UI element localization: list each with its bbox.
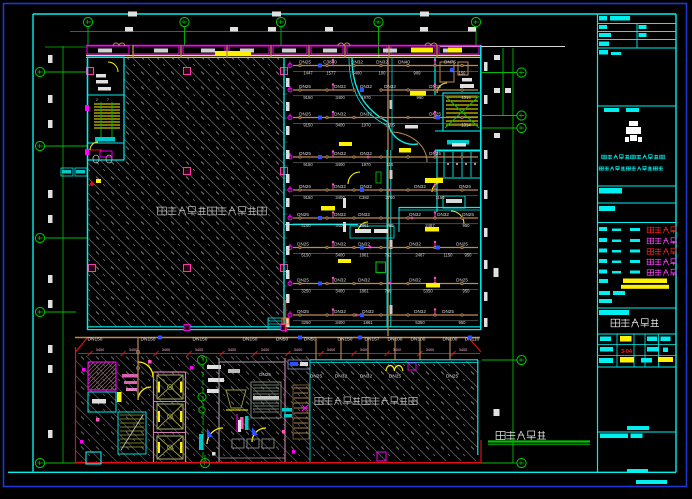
svg-text:780: 780 <box>385 288 393 293</box>
svg-text:5350: 5350 <box>423 288 433 293</box>
svg-text:1150: 1150 <box>443 252 453 257</box>
svg-text:DN25: DN25 <box>299 84 311 89</box>
svg-text:DN32: DN32 <box>414 184 426 189</box>
svg-text:DN50: DN50 <box>304 337 317 343</box>
svg-text:DN150: DN150 <box>193 337 208 343</box>
svg-text:2487: 2487 <box>415 252 425 257</box>
svg-text:960: 960 <box>417 95 425 100</box>
svg-text:DN25: DN25 <box>299 184 311 189</box>
svg-text:950: 950 <box>463 288 471 293</box>
svg-text:DN157: DN157 <box>365 337 380 343</box>
svg-text:DN32: DN32 <box>360 374 373 380</box>
svg-text:DN15: DN15 <box>429 84 441 89</box>
svg-text:DN32: DN32 <box>358 241 370 246</box>
svg-text:DN50: DN50 <box>276 337 289 343</box>
svg-text:3400: 3400 <box>261 348 269 352</box>
svg-text:DN32: DN32 <box>437 212 449 217</box>
svg-text:DN32: DN32 <box>358 212 370 217</box>
svg-text:9150: 9150 <box>303 95 313 100</box>
svg-text:3250: 3250 <box>301 288 311 293</box>
svg-text:3400: 3400 <box>335 252 345 257</box>
svg-text:3400: 3400 <box>459 348 467 352</box>
svg-text:DN32: DN32 <box>376 59 388 64</box>
svg-text:1861: 1861 <box>359 223 369 228</box>
svg-text:DN32: DN32 <box>334 184 346 189</box>
svg-text:DN100: DN100 <box>411 337 426 343</box>
svg-text:DN40: DN40 <box>398 59 410 64</box>
svg-text:DN32: DN32 <box>414 309 426 314</box>
svg-text:1970: 1970 <box>361 122 371 127</box>
svg-text:DN32: DN32 <box>409 241 421 246</box>
svg-text:1314: 1314 <box>461 122 471 127</box>
svg-text:DN32: DN32 <box>351 59 363 64</box>
svg-text:DN32: DN32 <box>409 212 421 217</box>
svg-text:DN32: DN32 <box>334 277 346 282</box>
svg-text:DN25: DN25 <box>462 212 474 217</box>
svg-text:3400: 3400 <box>96 348 104 352</box>
svg-text:DN25: DN25 <box>456 241 468 246</box>
svg-text:100: 100 <box>379 70 387 75</box>
svg-text:DN25: DN25 <box>389 374 402 380</box>
svg-text:DN150: DN150 <box>338 337 353 343</box>
svg-text:9150: 9150 <box>303 122 313 127</box>
svg-text:DN32: DN32 <box>334 309 346 314</box>
svg-text:DN25: DN25 <box>297 277 309 282</box>
svg-text:1861: 1861 <box>359 252 369 257</box>
svg-text:1577: 1577 <box>326 70 336 75</box>
svg-text:5150: 5150 <box>301 252 311 257</box>
svg-text:DN25: DN25 <box>259 372 271 377</box>
svg-text:950: 950 <box>465 252 473 257</box>
svg-text:3400: 3400 <box>195 348 203 352</box>
svg-text:C3840: C3840 <box>323 59 337 64</box>
svg-text:DN25: DN25 <box>459 184 471 189</box>
svg-text:C382: C382 <box>359 195 370 200</box>
svg-text:3250: 3250 <box>301 320 311 325</box>
svg-text:115: 115 <box>387 162 394 167</box>
svg-text:1861: 1861 <box>363 320 373 325</box>
svg-text:3400: 3400 <box>360 348 368 352</box>
svg-text:3400: 3400 <box>129 348 137 352</box>
svg-text:1150: 1150 <box>435 195 445 200</box>
svg-text:DN25: DN25 <box>429 151 441 156</box>
svg-text:3400: 3400 <box>327 348 335 352</box>
svg-text:1314: 1314 <box>461 95 471 100</box>
svg-text:3-04: 3-04 <box>621 349 633 355</box>
svg-text:950: 950 <box>459 320 467 325</box>
svg-text:3400: 3400 <box>335 223 345 228</box>
svg-text:DN25: DN25 <box>310 374 323 380</box>
svg-text:DN32: DN32 <box>334 151 346 156</box>
svg-text:DN25: DN25 <box>442 309 454 314</box>
svg-text:5150: 5150 <box>301 223 311 228</box>
svg-text:DN25: DN25 <box>456 277 468 282</box>
svg-text:1861: 1861 <box>359 288 369 293</box>
svg-text:5400: 5400 <box>352 70 362 75</box>
svg-text:DN110: DN110 <box>465 337 480 343</box>
svg-text:3400: 3400 <box>335 195 345 200</box>
svg-text:DN75: DN75 <box>444 59 456 64</box>
svg-text:7: 7 <box>107 98 109 102</box>
svg-text:3400: 3400 <box>335 320 345 325</box>
svg-text:DN25: DN25 <box>299 59 311 64</box>
svg-text:5350: 5350 <box>415 320 425 325</box>
svg-text:1970: 1970 <box>361 95 371 100</box>
svg-text:950: 950 <box>463 223 471 228</box>
svg-text:DN150: DN150 <box>141 337 156 343</box>
svg-text:DN25: DN25 <box>299 151 311 156</box>
svg-text:780: 780 <box>387 223 395 228</box>
svg-text:DN32: DN32 <box>358 277 370 282</box>
svg-text:1970: 1970 <box>361 162 371 167</box>
svg-text:DN32: DN32 <box>334 212 346 217</box>
svg-text:DN150: DN150 <box>243 337 258 343</box>
svg-text:DN32: DN32 <box>360 151 372 156</box>
svg-text:DN32: DN32 <box>409 277 421 282</box>
svg-text:3400: 3400 <box>294 348 302 352</box>
svg-text:3400: 3400 <box>228 348 236 352</box>
svg-text:DN32: DN32 <box>360 111 372 116</box>
svg-text:DN32: DN32 <box>334 111 346 116</box>
svg-text:150: 150 <box>459 70 467 75</box>
svg-text:DN25: DN25 <box>297 241 309 246</box>
svg-text:9150: 9150 <box>303 162 313 167</box>
svg-text:3400: 3400 <box>426 348 434 352</box>
svg-text:3400: 3400 <box>335 122 345 127</box>
svg-text:DN25: DN25 <box>297 212 309 217</box>
svg-text:DN150: DN150 <box>88 337 103 343</box>
svg-text:3400: 3400 <box>335 162 345 167</box>
svg-text:9150: 9150 <box>303 195 313 200</box>
svg-text:3400: 3400 <box>393 348 401 352</box>
svg-text:2700: 2700 <box>385 195 395 200</box>
svg-text:752: 752 <box>385 252 393 257</box>
svg-text:DN32: DN32 <box>384 84 396 89</box>
svg-text:3400: 3400 <box>162 348 170 352</box>
svg-text:DN25: DN25 <box>446 374 459 380</box>
svg-text:2: 2 <box>96 98 98 102</box>
svg-text:DN25: DN25 <box>297 309 309 314</box>
svg-text:1447: 1447 <box>303 70 313 75</box>
svg-text:DN32: DN32 <box>334 241 346 246</box>
svg-text:3400: 3400 <box>335 288 345 293</box>
svg-text:DN25: DN25 <box>299 111 311 116</box>
svg-text:DN32: DN32 <box>334 84 346 89</box>
svg-text:3400: 3400 <box>335 95 345 100</box>
svg-text:1505: 1505 <box>385 122 395 127</box>
svg-text:909: 909 <box>414 70 422 75</box>
svg-text:DN32: DN32 <box>335 374 348 380</box>
